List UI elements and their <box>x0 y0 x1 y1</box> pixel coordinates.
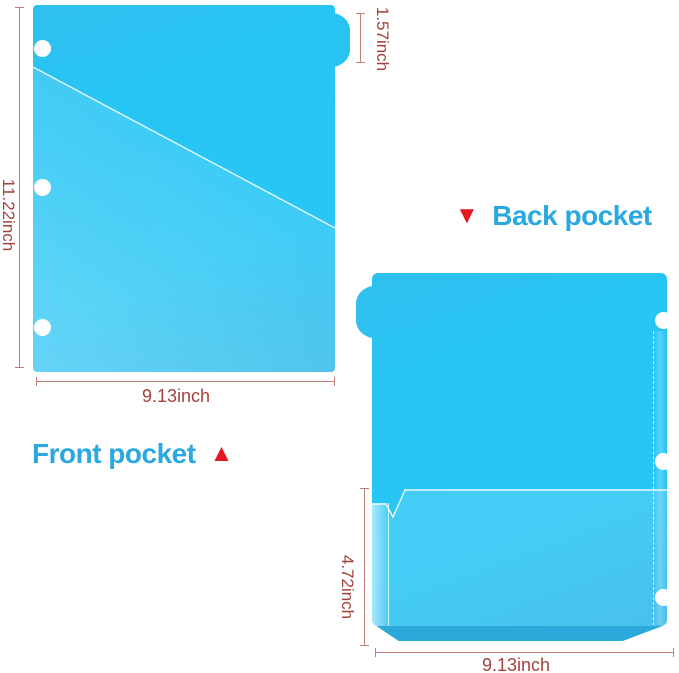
front-pocket-callout: Front pocket ▲ <box>32 438 233 470</box>
back-pocket-overlay <box>372 273 667 626</box>
dimension-label-front-height: 11.22inch <box>0 173 18 257</box>
pocket-bottom-weld <box>372 626 667 641</box>
index-tab-shape <box>356 286 373 338</box>
back-folder-index-tab <box>355 285 373 339</box>
front-folder <box>33 5 335 372</box>
pocket-left-gusset <box>372 503 389 626</box>
binder-hole-bottom <box>34 319 51 336</box>
dimension-line-tab-height <box>360 13 361 63</box>
binder-hole-middle <box>655 453 672 470</box>
back-pocket-fill <box>372 490 667 626</box>
front-folder-index-tab <box>333 12 352 68</box>
dimension-label-tab-height: 1.57inch <box>372 3 392 75</box>
diagonal-pocket-edge-line <box>33 67 335 228</box>
back-folder <box>372 273 667 626</box>
up-triangle-icon: ▲ <box>210 442 233 466</box>
index-tab-shape <box>333 13 350 67</box>
binder-hole-top <box>34 40 51 57</box>
binder-hole-middle <box>34 179 51 196</box>
dimension-line-front-width <box>36 381 335 382</box>
back-pocket-label: Back pocket <box>492 200 651 232</box>
dimension-label-front-width: 9.13inch <box>118 386 234 407</box>
back-pocket-callout: ▼ Back pocket <box>455 200 652 232</box>
dimension-label-back-width: 9.13inch <box>458 655 574 673</box>
dimension-line-back-width <box>375 652 674 653</box>
dimension-line-back-pocket-height <box>364 488 365 646</box>
front-pocket-label: Front pocket <box>32 438 196 470</box>
binder-hole-top <box>655 312 672 329</box>
product-dimension-diagram: 11.22inch 9.13inch 1.57inch Front pocket… <box>0 0 679 673</box>
down-triangle-icon: ▼ <box>455 204 478 228</box>
dimension-label-back-pocket-height: 4.72inch <box>337 549 357 625</box>
dimension-line-front-height <box>19 7 20 368</box>
front-pocket-edge <box>33 5 335 372</box>
binder-hole-bottom <box>655 589 672 606</box>
